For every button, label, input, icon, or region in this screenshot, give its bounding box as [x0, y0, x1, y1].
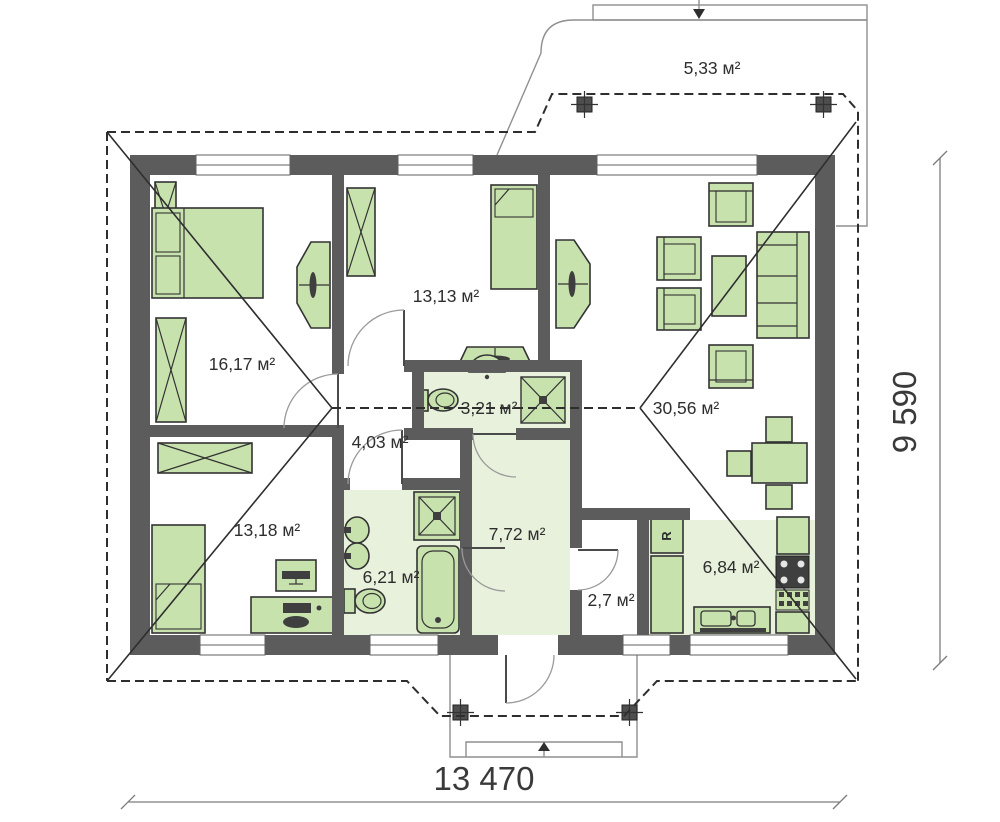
- terrace-platform-edge: [497, 20, 867, 155]
- faucet: [731, 616, 736, 621]
- door-entrance: [498, 635, 558, 703]
- toilet: [344, 589, 385, 613]
- dining-table: [752, 443, 807, 483]
- kitchen-sink: [694, 607, 770, 633]
- dimension-height-label: 9 590: [886, 371, 923, 454]
- arrow-down-icon: [693, 9, 705, 19]
- porch: [447, 655, 643, 757]
- desk: [251, 597, 336, 633]
- sofa: [757, 232, 809, 338]
- area-label-terrace: 5,33 м²: [684, 58, 741, 78]
- area-label-kitchen: 6,84 м²: [703, 557, 760, 577]
- door-pantry: [578, 550, 618, 590]
- washbasin: [344, 517, 369, 543]
- single-bed: [491, 185, 537, 289]
- shower: [414, 492, 460, 540]
- dressing-table: [297, 242, 330, 328]
- dimension-width: 13 470: [121, 760, 847, 809]
- window: [370, 635, 438, 655]
- computer-table: [276, 560, 316, 591]
- wardrobe: [347, 188, 375, 276]
- window: [623, 635, 670, 655]
- dining-chair: [766, 417, 792, 442]
- dimension-width-label: 13 470: [434, 760, 535, 797]
- dining-chair: [727, 451, 751, 476]
- armchair: [657, 237, 701, 280]
- roof-edge-bottom: [107, 681, 858, 716]
- area-label-hall: 7,72 м²: [489, 524, 546, 544]
- floor-plan-drawing: R: [0, 0, 1000, 822]
- area-label-living: 30,56 м²: [653, 398, 720, 418]
- area-label-bedroom-3: 13,18 м²: [234, 520, 301, 540]
- floor-plan-page: R: [0, 0, 1000, 822]
- washbasin: [344, 543, 369, 569]
- window: [200, 635, 265, 655]
- computer-monitor: [282, 571, 310, 579]
- office-chair: [283, 616, 309, 628]
- area-label-wc: 3,21 м²: [461, 398, 518, 418]
- dining-chair: [766, 485, 792, 509]
- area-label-bedroom-1: 16,17 м²: [209, 354, 276, 374]
- bathtub: [417, 546, 459, 633]
- terrace-post: [810, 91, 837, 118]
- porch-post: [616, 699, 643, 726]
- window: [690, 635, 788, 655]
- window: [196, 155, 290, 175]
- window: [597, 155, 757, 175]
- pillow: [156, 213, 180, 252]
- keyboard: [283, 603, 311, 613]
- dimension-height: 9 590: [886, 151, 947, 670]
- armchair: [657, 288, 701, 330]
- terrace-post: [571, 91, 598, 118]
- armchair: [709, 345, 753, 388]
- pillow: [156, 584, 201, 629]
- kitchen-counter: [777, 517, 809, 554]
- area-label-pantry: 2,7 м²: [587, 590, 634, 610]
- wardrobe: [158, 443, 252, 473]
- kitchen-counter: [776, 612, 809, 633]
- terrace: [497, 0, 867, 226]
- terrace-steps: [593, 5, 867, 20]
- shower: [521, 377, 565, 423]
- tv-stand: [556, 240, 590, 328]
- fridge-label: R: [659, 531, 674, 541]
- arrow-up-icon: [538, 742, 550, 751]
- wardrobe: [156, 318, 186, 422]
- door-bedroom-2: [348, 310, 404, 366]
- pillow: [495, 189, 533, 217]
- area-label-bathroom: 6,21 м²: [363, 567, 420, 587]
- pillow: [156, 256, 180, 294]
- porch-post: [447, 699, 474, 726]
- area-label-bedroom-2: 13,13 м²: [413, 286, 480, 306]
- double-bed: [152, 208, 263, 298]
- kitchen-counter: [651, 556, 683, 633]
- terrace-platform-right-edge: [836, 20, 867, 226]
- window: [398, 155, 473, 175]
- bedroom-2-furniture: [347, 185, 537, 368]
- armchair: [709, 183, 753, 226]
- cooktop: [776, 556, 809, 588]
- area-label-hallway: 4,03 м²: [352, 432, 409, 452]
- fridge: R: [651, 519, 683, 553]
- mouse: [317, 606, 322, 611]
